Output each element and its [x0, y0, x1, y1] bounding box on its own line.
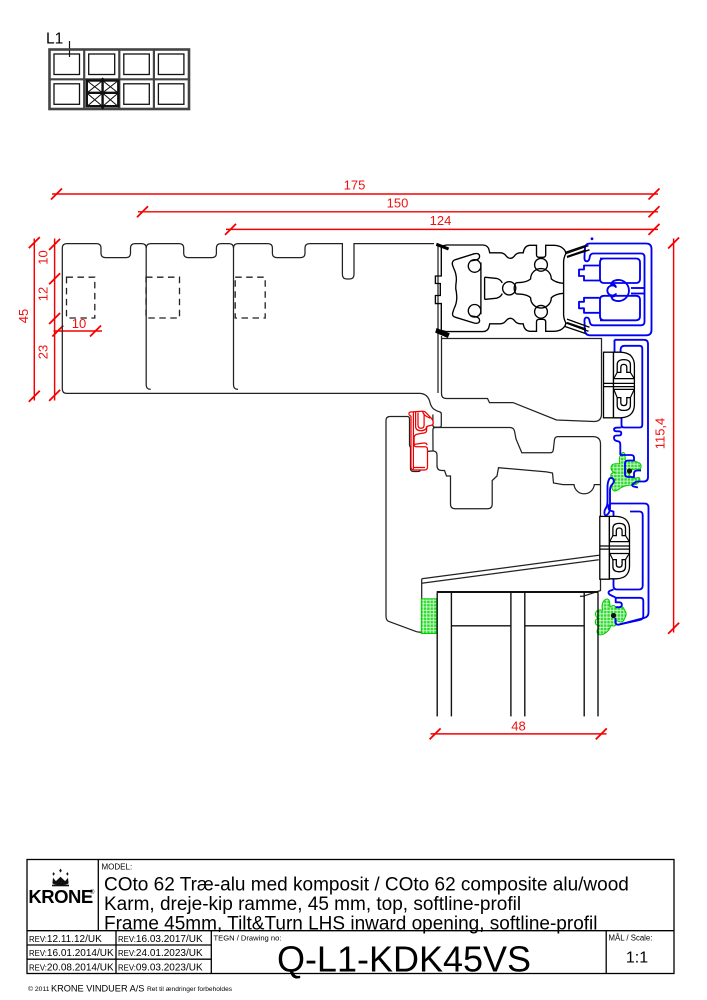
svg-text:KRONE VINDUER A/S: KRONE VINDUER A/S [51, 984, 144, 994]
svg-text:REV:16.03.2017/UK: REV:16.03.2017/UK [118, 934, 203, 945]
svg-text:Q-L1-KDK45VS: Q-L1-KDK45VS [277, 939, 531, 980]
svg-text:L1: L1 [46, 31, 63, 48]
svg-text:REV:20.08.2014/UK: REV:20.08.2014/UK [29, 962, 114, 973]
svg-text:REV:09.03.2023/UK: REV:09.03.2023/UK [118, 962, 203, 973]
svg-text:REV:16.01.2014/UK: REV:16.01.2014/UK [29, 948, 114, 959]
svg-text:48: 48 [511, 719, 525, 734]
svg-text:REV:24.01.2023/UK: REV:24.01.2023/UK [118, 948, 203, 959]
svg-text:REV:12.11.12/UK: REV:12.11.12/UK [29, 934, 102, 945]
svg-text:175: 175 [344, 178, 366, 193]
svg-text:Ret til ændringer forbeholdes: Ret til ændringer forbeholdes [147, 986, 233, 993]
svg-text:Karm, dreje-kip ramme, 45 mm,: Karm, dreje-kip ramme, 45 mm, top, softl… [104, 894, 521, 915]
svg-text:12: 12 [36, 287, 51, 301]
svg-text:MODEL:: MODEL: [102, 863, 133, 872]
svg-text:KRONE: KRONE [28, 886, 92, 907]
svg-text:10: 10 [36, 250, 51, 264]
svg-text:© 2011: © 2011 [28, 985, 50, 993]
svg-text:1:1: 1:1 [626, 950, 648, 967]
svg-text:45: 45 [16, 309, 31, 323]
svg-text:COto 62 Træ-alu med komposit /: COto 62 Træ-alu med komposit / COto 62 c… [104, 875, 629, 896]
svg-text:TEGN / Drawing no:: TEGN / Drawing no: [214, 934, 282, 943]
svg-text:Frame 45mm, Tilt&Turn LHS inwa: Frame 45mm, Tilt&Turn LHS inward opening… [104, 913, 598, 934]
svg-text:115,4: 115,4 [653, 418, 668, 450]
svg-text:124: 124 [430, 213, 452, 228]
svg-text:150: 150 [387, 195, 409, 210]
svg-text:MÅL / Scale:: MÅL / Scale: [609, 934, 653, 943]
svg-text:®: ® [90, 889, 95, 896]
svg-text:23: 23 [36, 345, 51, 359]
